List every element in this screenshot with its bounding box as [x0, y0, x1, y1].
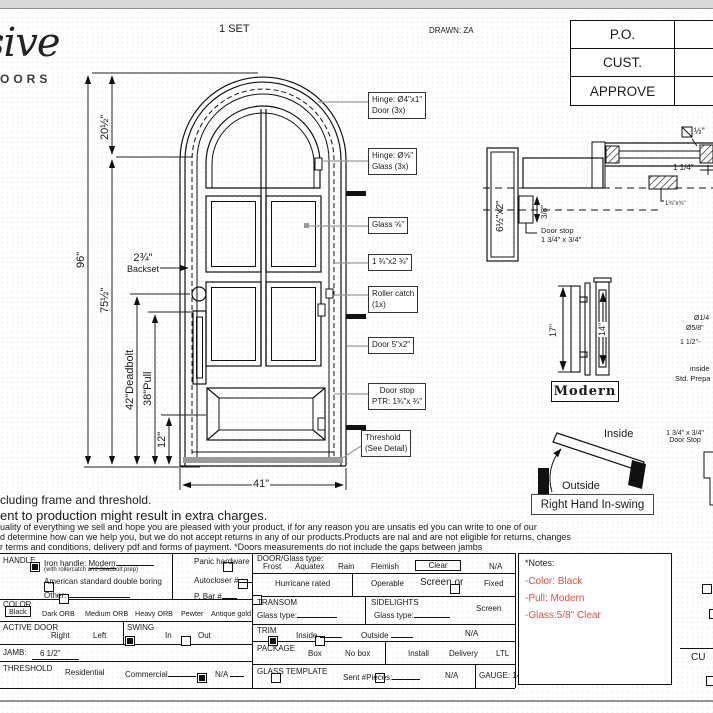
trim-outside-blank[interactable]: [391, 629, 413, 638]
note-pull: -Pull: Modern: [525, 593, 584, 604]
approval-table: P.O. CUST. APPROVE: [570, 20, 713, 106]
note-color: -Color: Black: [525, 576, 582, 587]
stop-offset-label: 3/8": [540, 205, 549, 219]
color-medium-orb-option[interactable]: Medium ORB: [85, 609, 128, 618]
approval-row-cust: CUST.: [571, 49, 713, 77]
trim-outside-option: Outside: [361, 629, 413, 640]
form-line: [252, 641, 515, 642]
hurricane-label: Hurricane rated: [275, 579, 330, 588]
head-section-detail: [483, 127, 713, 261]
callout-mullion-size: 1 ¾"x2 ¾": [368, 254, 412, 271]
handle-edge-dim3: 1 1/2"-: [680, 339, 700, 346]
swing-in-label: In: [165, 631, 172, 640]
transom-glass-option: Glass type:: [257, 609, 337, 620]
package-delivery-label: Delivery: [449, 649, 478, 658]
callout-roller-catch: Roller catch (1x): [368, 286, 418, 313]
checkbox-iron-handle[interactable]: [30, 562, 40, 572]
threshold-commercial-label: Commercial: [125, 670, 168, 679]
template-sent-blank[interactable]: [392, 671, 420, 680]
glass-frost-option[interactable]: Frost: [263, 562, 281, 571]
po-value-field[interactable]: [675, 21, 713, 48]
template-na-label: N/A: [445, 671, 458, 680]
dim-door-width: 41": [252, 478, 270, 490]
disclaimer-line2: ent to production might result in extra …: [0, 508, 267, 523]
trim-inside-option: Inside: [296, 629, 342, 640]
color-pewter-option[interactable]: Pewter: [181, 609, 203, 618]
color-dark-orb-option[interactable]: Dark ORB: [42, 609, 75, 618]
callout-hinge-glass-line1: Hinge: Ø⅝": [372, 151, 413, 162]
trim-section-label: TRIM: [257, 626, 277, 635]
form-line: [515, 553, 516, 688]
glass-clear-label[interactable]: Clear: [415, 560, 461, 571]
head-door-stop-label: Door stop 1 3/4" x 3/4": [541, 226, 581, 244]
handle-style-label: Modern: [551, 381, 619, 402]
window-edge-strip: [0, 0, 713, 9]
callout-door-stop-line1: Door stop: [372, 386, 422, 397]
checkbox-threshold-residential[interactable]: [197, 673, 207, 683]
handle-dim-17: 17": [548, 324, 558, 337]
trim-inside-blank[interactable]: [320, 629, 342, 638]
fixed-label: Fixed: [484, 579, 504, 588]
glass-flemish-option[interactable]: Flemish: [371, 562, 399, 571]
dim-bottom-rail: 12": [156, 432, 168, 448]
head-hatch-dim: 1¾"x¾": [665, 201, 686, 207]
pbar-label: P. Bar #: [194, 592, 222, 601]
handle-edge-inside: inside: [690, 364, 710, 373]
head-door-stop-line2: 1 3/4" x 3/4": [541, 235, 581, 244]
callout-glass-thickness: Glass ⅝": [368, 217, 408, 234]
jamb-label: JAMB:: [3, 648, 27, 657]
active-left-label: Left: [93, 631, 106, 640]
trim-na-label: N/A: [465, 629, 478, 638]
panic-hardware-label: Panic hardware: [194, 557, 250, 566]
gauge-label: GAUGE: 14: [479, 671, 521, 680]
swing-out-label: Out: [198, 631, 211, 640]
callout-hinge-glass-line2: Glass (3x): [372, 162, 413, 173]
callout-roller-line1: Roller catch: [372, 289, 414, 300]
callout-hinge-door-line2: Door (3x): [372, 106, 422, 117]
drawn-by-label: DRAWN: ZA: [429, 26, 474, 35]
other-handle-option: Other:: [44, 589, 130, 600]
dim-arch-height: 20½": [99, 115, 111, 140]
glass-aquatex-option[interactable]: Aquatex: [295, 562, 324, 571]
pbar-option: P. Bar #: [194, 590, 237, 601]
checkbox-fixed[interactable]: [702, 584, 712, 594]
notes-box: *Notes: -Color: Black -Pull: Modern -Gla…: [518, 553, 672, 685]
american-standard-label: American standard double boring: [44, 577, 162, 586]
corner-signature-label: CU: [691, 652, 705, 663]
sidelights-screen-label: Screen: [476, 604, 501, 613]
disclaimer-line1: cluding frame and threshold.: [0, 493, 151, 507]
approval-row-approve: APPROVE: [571, 77, 713, 105]
color-black-option[interactable]: Black: [5, 607, 31, 616]
dim-pull-height: 38"Pull: [142, 372, 154, 406]
sidelights-glass-option: Glass type:: [374, 609, 450, 620]
threshold-section-label: THRESHOLD: [3, 664, 52, 673]
transom-glass-blank[interactable]: [297, 609, 337, 618]
sidelights-section-label: SIDELIGHTS: [371, 598, 419, 607]
backset-value: 2¾": [120, 252, 166, 264]
cust-value-field[interactable]: [675, 49, 713, 76]
transom-section-label: TRANSOM: [257, 598, 297, 607]
backset-label: Backset: [120, 264, 166, 274]
dim-leaf-height: 75½": [99, 288, 111, 313]
template-sent-label: Sent #Pieces:: [343, 673, 392, 682]
set-count-label: 1 SET: [219, 23, 250, 35]
template-sent-option: Sent #Pieces:: [343, 671, 420, 682]
threshold-na-option: N/A: [215, 668, 244, 679]
glass-na-option[interactable]: N/A: [489, 562, 502, 571]
jamb-size-label: 6½"x2": [495, 200, 506, 232]
cust-label: CUST.: [571, 49, 675, 76]
template-section-label: GLASS TEMPLATE: [257, 667, 327, 676]
color-antique-gold-option[interactable]: Antique gold: [211, 609, 251, 618]
dim-deadbolt-height: 42"Deadbolt: [124, 350, 136, 410]
package-section-label: PACKAGE: [257, 644, 295, 653]
swing-section-label: SWING: [127, 623, 154, 632]
callout-hinge-glass: Hinge: Ø⅝" Glass (3x): [368, 148, 417, 175]
handle-edge-dim1: Ø1/4: [694, 315, 709, 322]
signature-line: [680, 648, 713, 649]
form-line: [385, 641, 386, 664]
callout-lock-stile: Door 5"x2": [368, 337, 414, 354]
package-ltl-label: LTL: [496, 649, 509, 658]
package-nobox-label: No box: [345, 649, 370, 658]
disclaimer-line3: uality of everything we sell and hope yo…: [0, 522, 537, 532]
autocloser-blank[interactable]: [238, 574, 253, 583]
swing-inside-label: Inside: [604, 428, 633, 440]
po-label: P.O.: [571, 21, 675, 48]
sidelights-glass-blank[interactable]: [414, 609, 450, 618]
disclaimer-line5: r terms and conditions, delivery pdf and…: [0, 542, 482, 552]
glass-rain-option[interactable]: Rain: [338, 562, 354, 571]
threshold-commercial-option: Commercial: [125, 668, 196, 679]
checkbox-template-sent[interactable]: [706, 676, 713, 686]
form-line: [252, 573, 515, 574]
autocloser-label: Autocloser #: [194, 576, 238, 585]
operable-label: Operable: [371, 579, 404, 588]
logo-script-text: sive: [0, 20, 60, 66]
iron-handle-blank[interactable]: [116, 557, 154, 566]
other-handle-label: Other:: [44, 591, 66, 600]
callout-threshold-line2: (See Detail): [365, 444, 407, 455]
form-line: [0, 688, 515, 689]
other-handle-blank[interactable]: [68, 589, 130, 598]
swing-door-stop-note: 1 3/4" x 3/4" Door Stop: [658, 430, 712, 444]
threshold-na-label: N/A: [215, 670, 228, 679]
callout-threshold: Threshold (See Detail): [361, 430, 411, 457]
active-right-label: Right: [51, 631, 70, 640]
form-line: [352, 573, 353, 596]
form-line: [172, 553, 173, 599]
threshold-na-blank[interactable]: [230, 668, 244, 677]
backset-dimension: 2¾" Backset: [120, 252, 166, 274]
drawing-sheet: sive OORS 1 SET DRAWN: ZA P.O. CUST. APP…: [0, 0, 713, 713]
handle-edge-dim2: Ø5/8": [686, 325, 704, 332]
callout-roller-line2: (1x): [372, 300, 414, 311]
approval-row-po: P.O.: [571, 21, 713, 49]
autocloser-option: Autocloser #: [194, 574, 253, 585]
square-half-label: ½": [694, 126, 705, 136]
checkbox-active-right[interactable]: [125, 636, 135, 646]
trim-inside-label: Inside: [296, 631, 317, 640]
handle-dim-14: 14": [597, 322, 607, 337]
callout-hinge-door-line1: Hinge: Ø4"x1": [372, 95, 422, 106]
form-line: [252, 624, 515, 625]
glass-clear-option[interactable]: Clear: [415, 560, 461, 571]
logo-word-text: OORS: [0, 72, 51, 86]
notes-title: *Notes:: [525, 558, 555, 568]
iron-handle-subnote: (with rollercatch and deadbolt prep): [44, 567, 138, 573]
transom-glass-label: Glass type:: [257, 611, 297, 620]
door-elevation: [180, 77, 366, 466]
jamb-value[interactable]: 6 1/2": [32, 649, 79, 660]
dim-total-height: 96": [75, 252, 87, 268]
screen-or-label: Screen or: [420, 577, 463, 588]
disclaimer-line4: d determine how can we help you, but we …: [0, 532, 571, 542]
threshold-commercial-blank[interactable]: [168, 668, 196, 677]
swing-direction-label: Right Hand In-swing: [531, 494, 654, 515]
color-black-label[interactable]: Black: [5, 606, 31, 617]
form-line: [475, 664, 476, 688]
handle-edge-std-prep: Std. Prepa: [675, 374, 710, 383]
approve-label: APPROVE: [571, 77, 675, 105]
trim-outside-label: Outside: [361, 631, 389, 640]
threshold-residential-label: Residential: [65, 668, 105, 677]
checkbox-active-left[interactable]: [181, 636, 191, 646]
callout-door-stop-line2: PTR: 1¾"x ¾": [372, 397, 422, 408]
swing-stop-line2: Door Stop: [658, 437, 712, 444]
sidelights-glass-label: Glass type:: [374, 611, 414, 620]
callout-hinge-door: Hinge: Ø4"x1" Door (3x): [368, 92, 426, 119]
callout-threshold-line1: Threshold: [365, 433, 407, 444]
swing-outside-label: Outside: [562, 480, 600, 492]
color-heavy-orb-option[interactable]: Heavy ORB: [135, 609, 173, 618]
package-install-label: Install: [408, 649, 429, 658]
active-door-label: ACTIVE DOOR: [3, 623, 58, 632]
form-line: [365, 596, 366, 624]
package-box-label: Box: [308, 649, 322, 658]
approve-value-field[interactable]: [675, 77, 713, 105]
checkbox-sidelights-screen[interactable]: [709, 609, 713, 619]
swing-stop-line1: 1 3/4" x 3/4": [658, 430, 712, 437]
head-door-stop-line1: Door stop: [541, 226, 581, 235]
callout-door-stop: Door stop PTR: 1¾"x ¾": [368, 383, 426, 410]
form-line: [0, 661, 252, 662]
pbar-blank[interactable]: [222, 590, 237, 599]
head-dim-quarter: 1 1/4": [673, 163, 694, 172]
note-glass: -Glass:5/8" Clear: [525, 610, 601, 621]
